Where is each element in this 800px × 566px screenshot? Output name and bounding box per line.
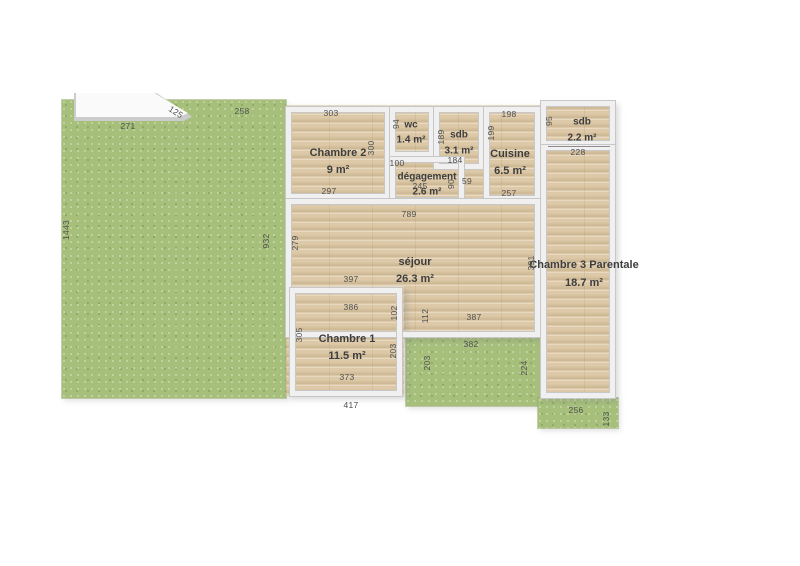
- room-area-cuisine: 6.5 m²: [494, 165, 526, 177]
- dimension-label: 932: [261, 233, 271, 248]
- room-area-sejour: 26.3 m²: [396, 273, 434, 285]
- room-wc[interactable]: [390, 107, 434, 157]
- room-area-chambre1: 11.5 m²: [328, 350, 365, 362]
- dimension-label: 90: [446, 179, 456, 189]
- grass-area-left: [62, 100, 286, 398]
- dimension-label: 184: [447, 155, 462, 165]
- dimension-label: 373: [339, 372, 354, 382]
- room-chambre3[interactable]: [541, 145, 615, 398]
- dimension-label: 271: [120, 121, 135, 131]
- room-name-sdb1: sdb: [450, 130, 468, 141]
- dimension-label: 305: [294, 327, 304, 342]
- dimension-label: 387: [466, 312, 481, 322]
- dimension-label: 94: [391, 119, 401, 129]
- dimension-label: 102: [389, 305, 399, 320]
- room-area-sdb2: 2.2 m²: [568, 133, 597, 144]
- dimension-label: 203: [388, 343, 398, 358]
- dimension-label: 258: [234, 106, 249, 116]
- dimension-label: 397: [343, 274, 358, 284]
- room-area-chambre2: 9 m²: [327, 164, 350, 176]
- room-name-chambre1: Chambre 1: [319, 333, 376, 345]
- dimension-label: 189: [436, 129, 446, 144]
- dimension-label: 279: [290, 235, 300, 250]
- room-name-chambre2: Chambre 2: [310, 147, 367, 159]
- floor-plan: Chambre 29 m²wc1.4 m²sdb3.1 m²Cuisine6.5…: [0, 0, 800, 566]
- dimension-label: 417: [343, 400, 358, 410]
- dimension-label: 198: [501, 109, 516, 119]
- dimension-label: 297: [321, 186, 336, 196]
- dimension-label: 133: [601, 411, 611, 426]
- dimension-label: 391: [526, 255, 536, 270]
- dimension-label: 199: [486, 125, 496, 140]
- dimension-label: 203: [422, 355, 432, 370]
- dimension-label: 1443: [61, 220, 71, 240]
- dimension-label: 300: [366, 140, 376, 155]
- room-name-chambre3: Chambre 3 Parentale: [529, 259, 638, 271]
- dimension-label: 112: [420, 309, 430, 323]
- dimension-label: 245: [412, 181, 427, 191]
- dimension-label: 100: [389, 158, 404, 168]
- dimension-label: 386: [343, 302, 358, 312]
- dimension-label: 303: [323, 108, 338, 118]
- room-name-sdb2: sdb: [573, 117, 591, 128]
- dimension-label: 224: [519, 360, 529, 375]
- dimension-label: 257: [501, 188, 516, 198]
- room-area-chambre3: 18.7 m²: [565, 277, 603, 289]
- dimension-label: 382: [463, 339, 478, 349]
- dimension-label: 256: [568, 405, 583, 415]
- room-name-cuisine: Cuisine: [490, 148, 530, 160]
- dimension-label: 95: [544, 116, 554, 126]
- room-name-sejour: séjour: [398, 256, 431, 268]
- dimension-label: 789: [401, 209, 416, 219]
- dimension-label: 228: [570, 147, 585, 157]
- room-area-wc: 1.4 m²: [397, 135, 426, 146]
- dimension-label: 59: [462, 176, 472, 186]
- room-name-wc: wc: [404, 120, 417, 131]
